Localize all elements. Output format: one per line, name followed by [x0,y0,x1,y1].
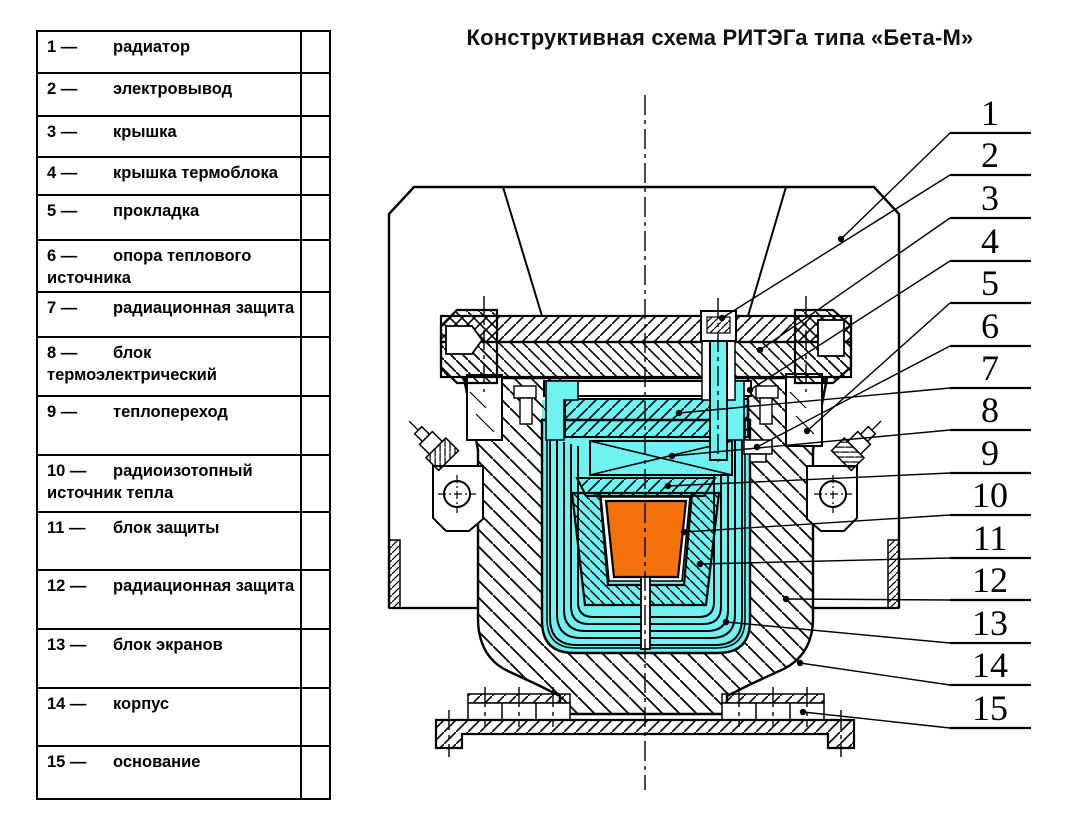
leader-dot [676,410,682,416]
leader-line [800,663,950,685]
callout-number: 8 [981,390,999,430]
leader-dot [783,596,789,602]
callout-number: 11 [973,518,1008,558]
leader-dot [747,387,753,393]
radiator-fin-foot-right [888,540,899,608]
leader-dot [697,561,703,567]
callout-number: 15 [972,688,1008,728]
radiator-fin-foot-left [389,540,400,608]
heat-transition [577,478,715,496]
callout-number: 13 [972,603,1008,643]
callout-number: 2 [981,135,999,175]
lid [441,310,851,383]
callout-number: 12 [972,560,1008,600]
gasket-panel-left [467,375,502,440]
leader-dot [754,444,760,450]
leader-dot [800,709,806,715]
leader-line [760,218,950,350]
leader-dot [681,529,687,535]
callout-number: 5 [981,263,999,303]
leader-dot [669,453,675,459]
callout-number: 6 [981,306,999,346]
leader-dot [723,619,729,625]
radioisotope-heat-source [606,501,686,577]
page: Конструктивная схема РИТЭГа типа «Бета-М… [0,0,1080,827]
callout-number: 7 [981,348,999,388]
leader-dot [757,347,763,353]
callout-number: 3 [981,178,999,218]
callout-number: 9 [981,433,999,473]
gasket-panel-right [786,374,822,446]
callout-number: 10 [972,475,1008,515]
callout-number: 1 [981,93,999,133]
leader-dot [719,315,725,321]
leader-dot [804,428,810,434]
leader-dot [665,483,671,489]
leader-line [786,599,950,600]
leader-dot [797,660,803,666]
callout-number: 4 [981,221,999,261]
callout-number: 14 [972,645,1008,685]
riteg-cross-section-diagram: 123456789101112131415 [0,0,1080,827]
